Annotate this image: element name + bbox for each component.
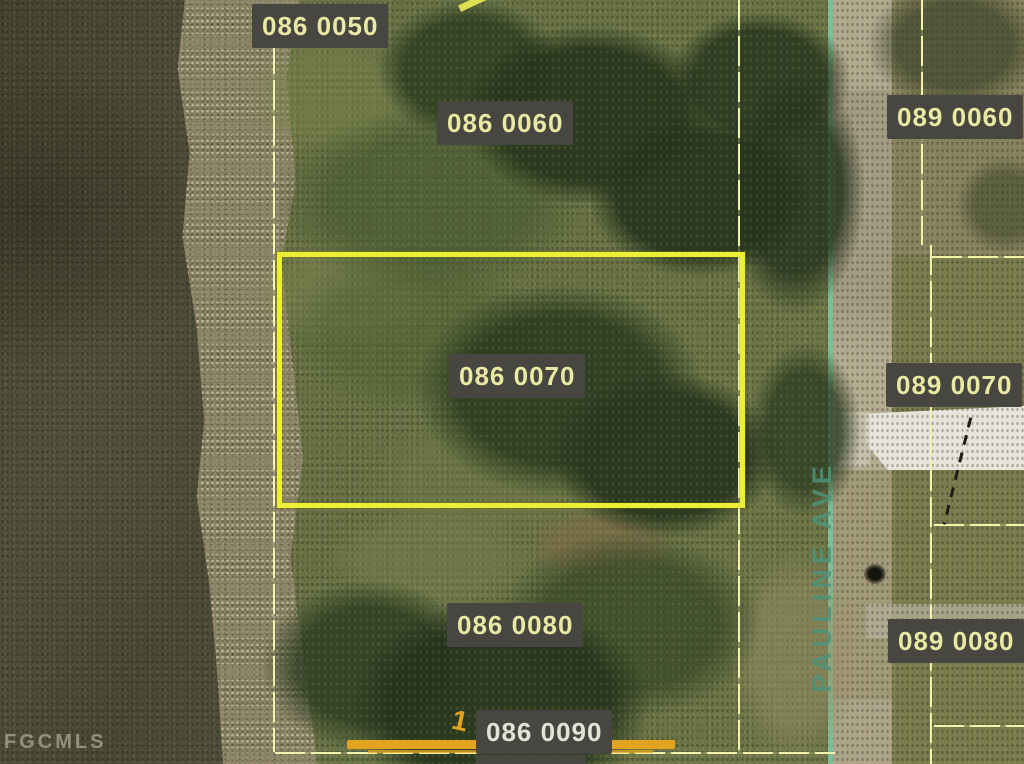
parcel-label-086-0070: 086 0070	[449, 354, 585, 398]
mls-watermark: FGCMLS	[4, 729, 106, 755]
parcel-line-right-lower	[930, 245, 932, 764]
object-on-road	[864, 564, 886, 584]
street-name-label: PAULINE AVE	[807, 442, 837, 712]
parcel-label-086-0090: 086 0090	[476, 710, 612, 754]
parcel-label-089-0080: 089 0080	[888, 619, 1024, 663]
aerial-map: 1 086 0050 086 0060 086 0070 086 0080 08…	[0, 0, 1024, 764]
parcel-label-089-0070: 089 0070	[886, 363, 1022, 407]
parcel-line-089-0070-0080	[934, 524, 1024, 526]
parcel-label-089-0060: 089 0060	[887, 95, 1023, 139]
parcel-line-089-0060-0070	[932, 256, 1024, 258]
parcel-label-086-0050: 086 0050	[252, 4, 388, 48]
partial-label-bottom	[476, 755, 586, 764]
parcel-line-west	[273, 44, 275, 752]
parcel-label-086-0060: 086 0060	[437, 101, 573, 145]
parcel-line-089-0080-south	[934, 725, 1024, 727]
parcel-label-086-0080: 086 0080	[447, 603, 583, 647]
